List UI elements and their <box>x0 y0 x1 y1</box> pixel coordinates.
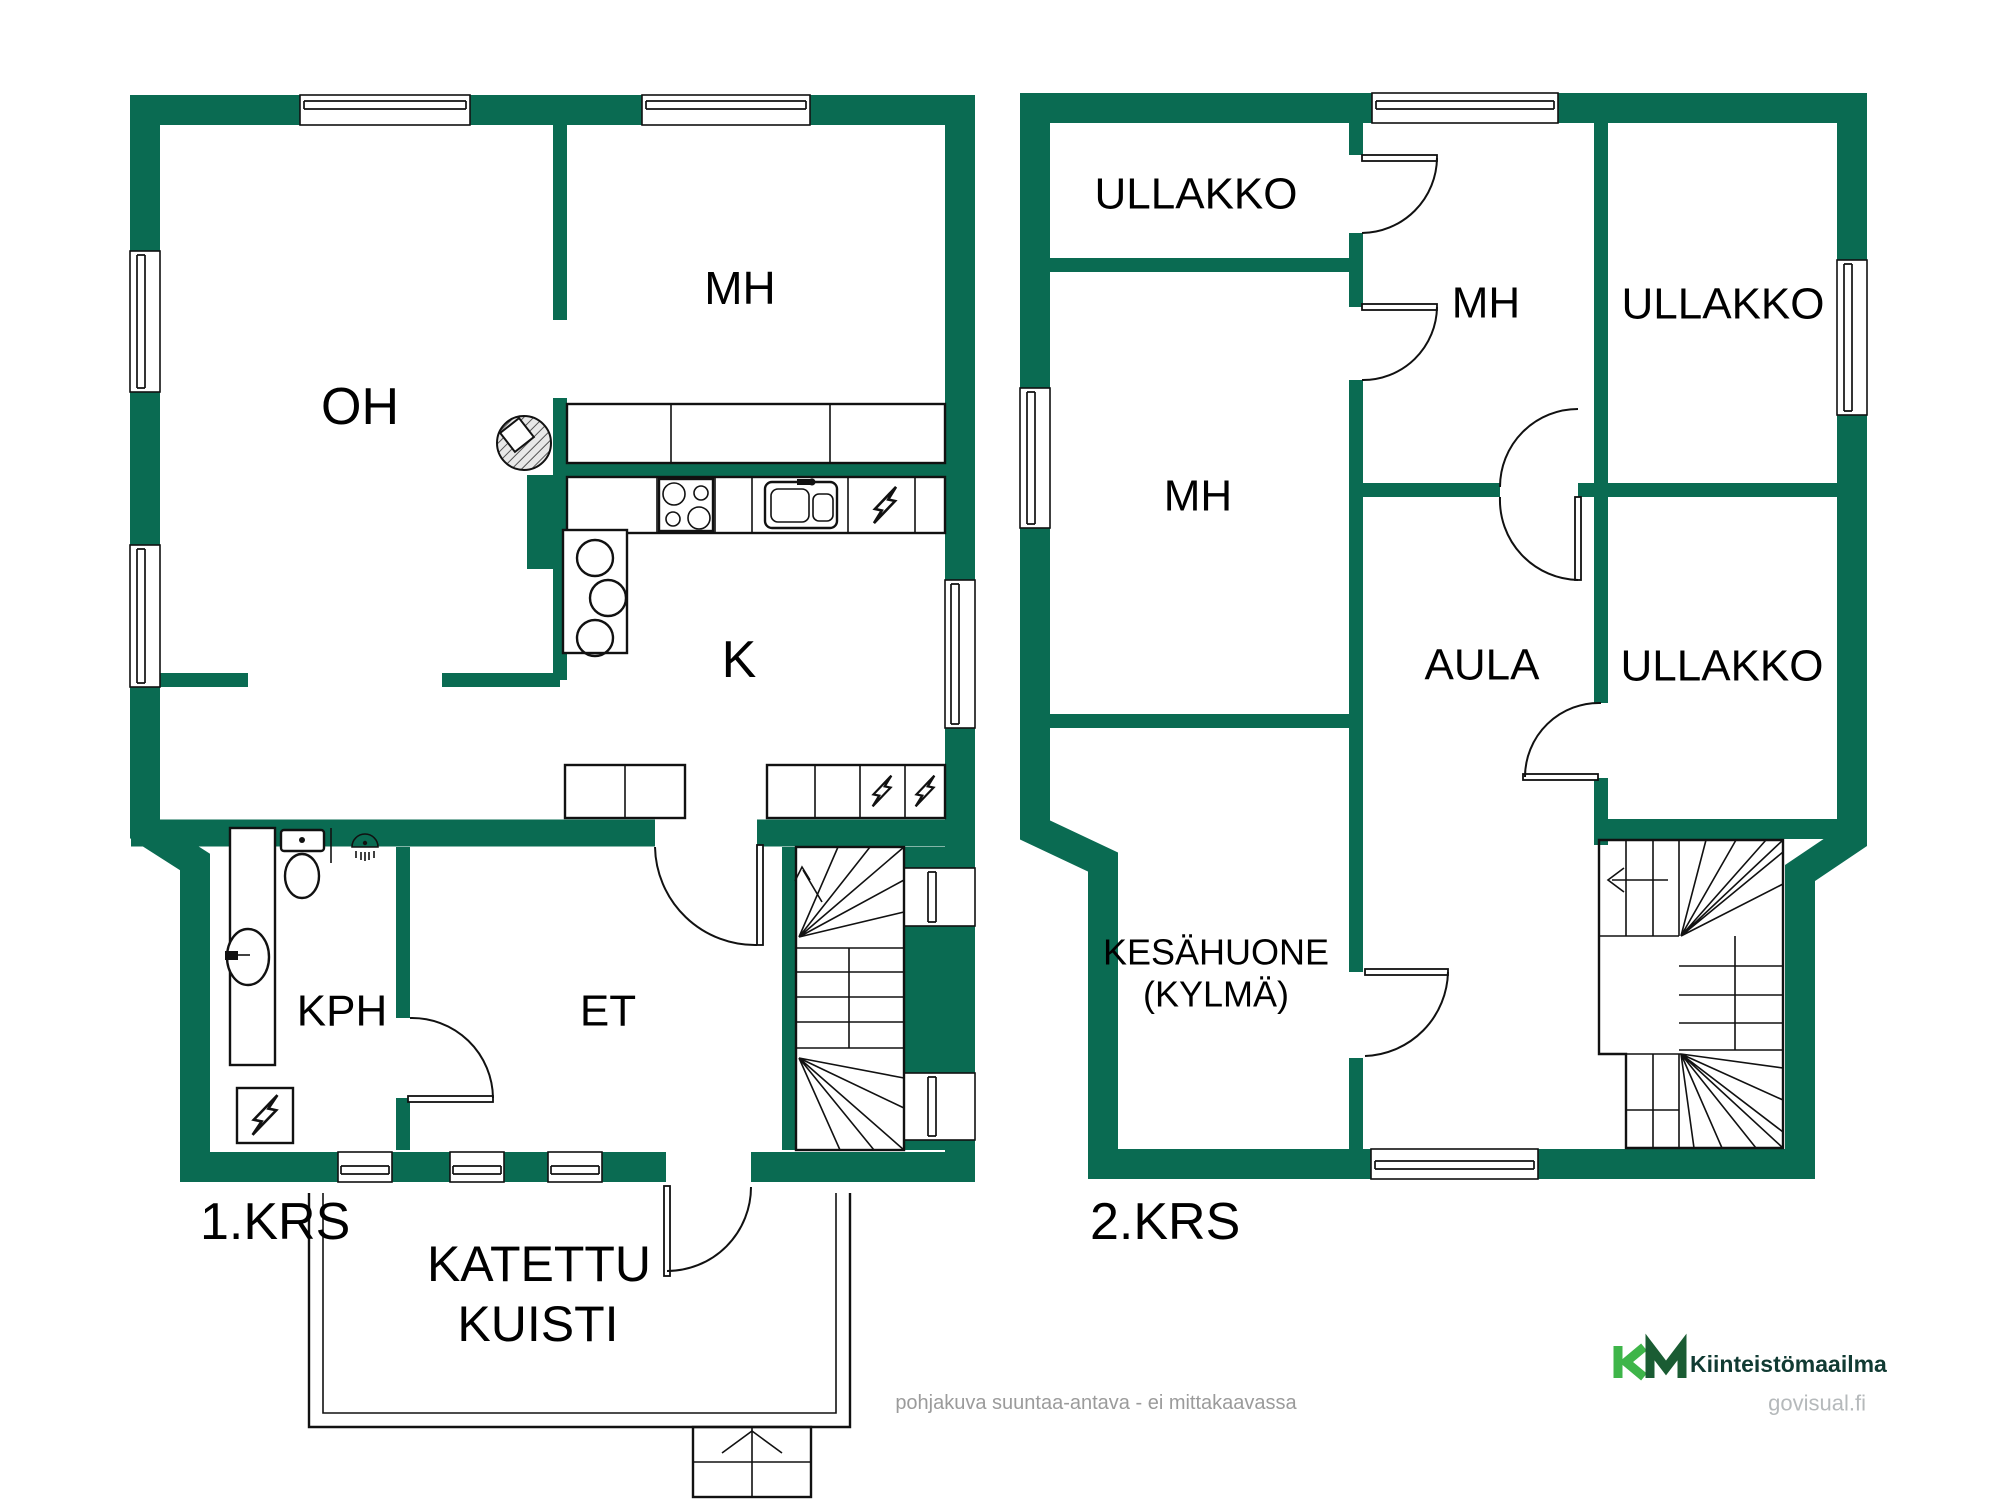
staircase <box>795 847 904 1150</box>
room-label-mh1: MH <box>704 262 776 314</box>
window <box>945 580 975 728</box>
fireplace-icon <box>497 416 551 470</box>
door <box>408 1018 493 1102</box>
window <box>904 868 975 926</box>
footer-disclaimer: pohjakuva suuntaa-antava - ei mittakaava… <box>895 1392 1297 1414</box>
floor2-plan: ULLAKKO MH ULLAKKO MH AULA ULLAKKO KESÄH… <box>1020 93 1867 1251</box>
room-label-kph: KPH <box>297 987 387 1036</box>
toilet-icon <box>281 830 324 898</box>
door <box>655 821 763 945</box>
window <box>642 95 810 125</box>
floor-plan-drawing: OH MH K KPH ET 1.KRS KATETTU KUISTI <box>0 0 2000 1500</box>
entrance-steps <box>693 1427 811 1497</box>
logo: Kiinteistömaailma govisual.fi <box>1618 1346 1887 1416</box>
window <box>338 1152 392 1182</box>
room-label-oh: OH <box>321 378 399 436</box>
floor-label-1krs: 1.KRS <box>200 1193 350 1251</box>
floor-plan-page: OH MH K KPH ET 1.KRS KATETTU KUISTI <box>0 0 2000 1500</box>
stove-icon <box>659 479 713 531</box>
room-label-aula: AULA <box>1425 641 1541 690</box>
electric-panel-icon <box>237 1088 293 1143</box>
room-label-mh-left: MH <box>1164 472 1232 521</box>
cabinet <box>767 765 945 818</box>
room-label-ullakko-lower-right: ULLAKKO <box>1621 642 1824 691</box>
room-label-et: ET <box>580 987 636 1036</box>
window <box>130 251 160 392</box>
room-label-k: K <box>722 631 757 689</box>
room-label-kesahuone-line2: (KYLMÄ) <box>1143 974 1289 1015</box>
room-label-ullakko-upper-right: ULLAKKO <box>1622 280 1825 329</box>
sink-icon <box>765 479 837 529</box>
floor-label-2krs: 2.KRS <box>1090 1193 1240 1251</box>
door <box>1362 304 1437 380</box>
window <box>1837 260 1867 415</box>
door <box>1365 969 1448 1056</box>
logo-name: Kiinteistömaailma <box>1690 1351 1887 1377</box>
sink-icon <box>225 929 269 985</box>
burner-unit-icon <box>563 530 627 656</box>
window <box>1020 388 1050 528</box>
floor1-plan: OH MH K KPH ET 1.KRS KATETTU KUISTI <box>130 95 975 1497</box>
window <box>548 1152 602 1182</box>
window <box>130 545 160 687</box>
counter <box>567 477 945 533</box>
door <box>1500 409 1581 580</box>
window <box>904 1073 975 1140</box>
porch-label-line2: KUISTI <box>457 1296 618 1352</box>
counter <box>567 404 945 463</box>
porch-label-line1: KATETTU <box>427 1236 651 1292</box>
wall <box>527 475 567 569</box>
staircase <box>1599 840 1783 1148</box>
cabinet <box>565 765 685 818</box>
logo-mark-km-icon <box>1618 1346 1682 1378</box>
window <box>450 1152 504 1182</box>
window <box>300 95 470 125</box>
logo-site: govisual.fi <box>1768 1391 1866 1416</box>
room-label-kesahuone: KESÄHUONE <box>1103 932 1329 973</box>
door <box>1523 703 1601 780</box>
room-label-ullakko-tl: ULLAKKO <box>1095 170 1298 219</box>
door <box>664 1151 751 1276</box>
window <box>1371 1149 1538 1179</box>
room-label-mh-center: MH <box>1452 279 1520 328</box>
door <box>1362 155 1437 233</box>
window <box>1372 93 1558 123</box>
